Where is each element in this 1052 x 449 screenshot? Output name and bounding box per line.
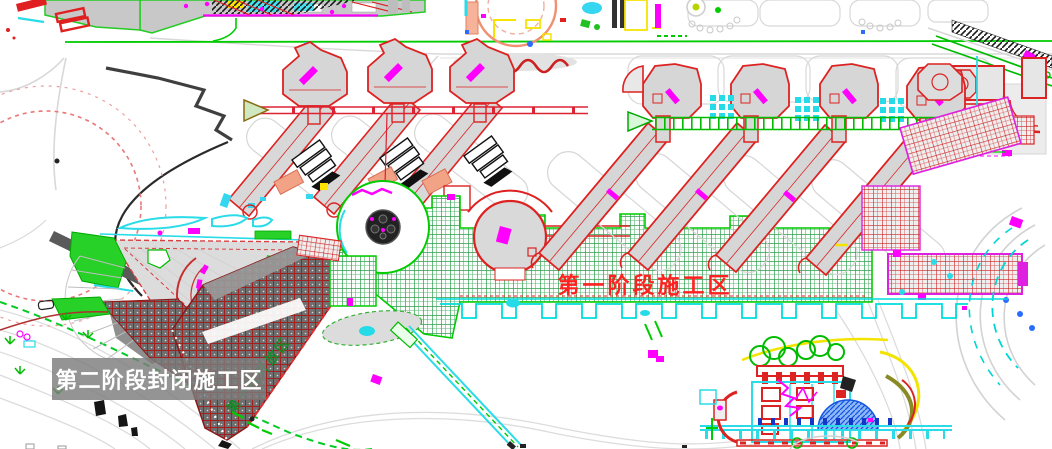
topleft-building-complex xyxy=(45,0,425,33)
black-bar xyxy=(612,0,617,28)
cyan-dot-grid xyxy=(710,95,734,119)
pond xyxy=(120,217,205,229)
hatch-band xyxy=(888,254,1022,294)
phase2-zone-label: 第二阶段封闭施工区 xyxy=(52,358,266,400)
phase1-zone-label: 第一阶段施工区 xyxy=(557,273,732,298)
phase2-zone-label-text: 第二阶段封闭施工区 xyxy=(55,368,262,393)
right-hatch-zone xyxy=(862,97,1035,385)
red-corner-mark xyxy=(16,0,47,12)
cap-fan xyxy=(623,66,643,92)
bottom-right-complex xyxy=(700,336,952,449)
cad-site-plan-screenshot: 第一批开放区 xyxy=(0,0,1052,449)
zigzag-wall xyxy=(106,68,232,140)
magenta-bar xyxy=(655,4,661,28)
site-plan-drawing: 第一批开放区 xyxy=(0,0,1052,449)
hedge xyxy=(52,297,110,320)
